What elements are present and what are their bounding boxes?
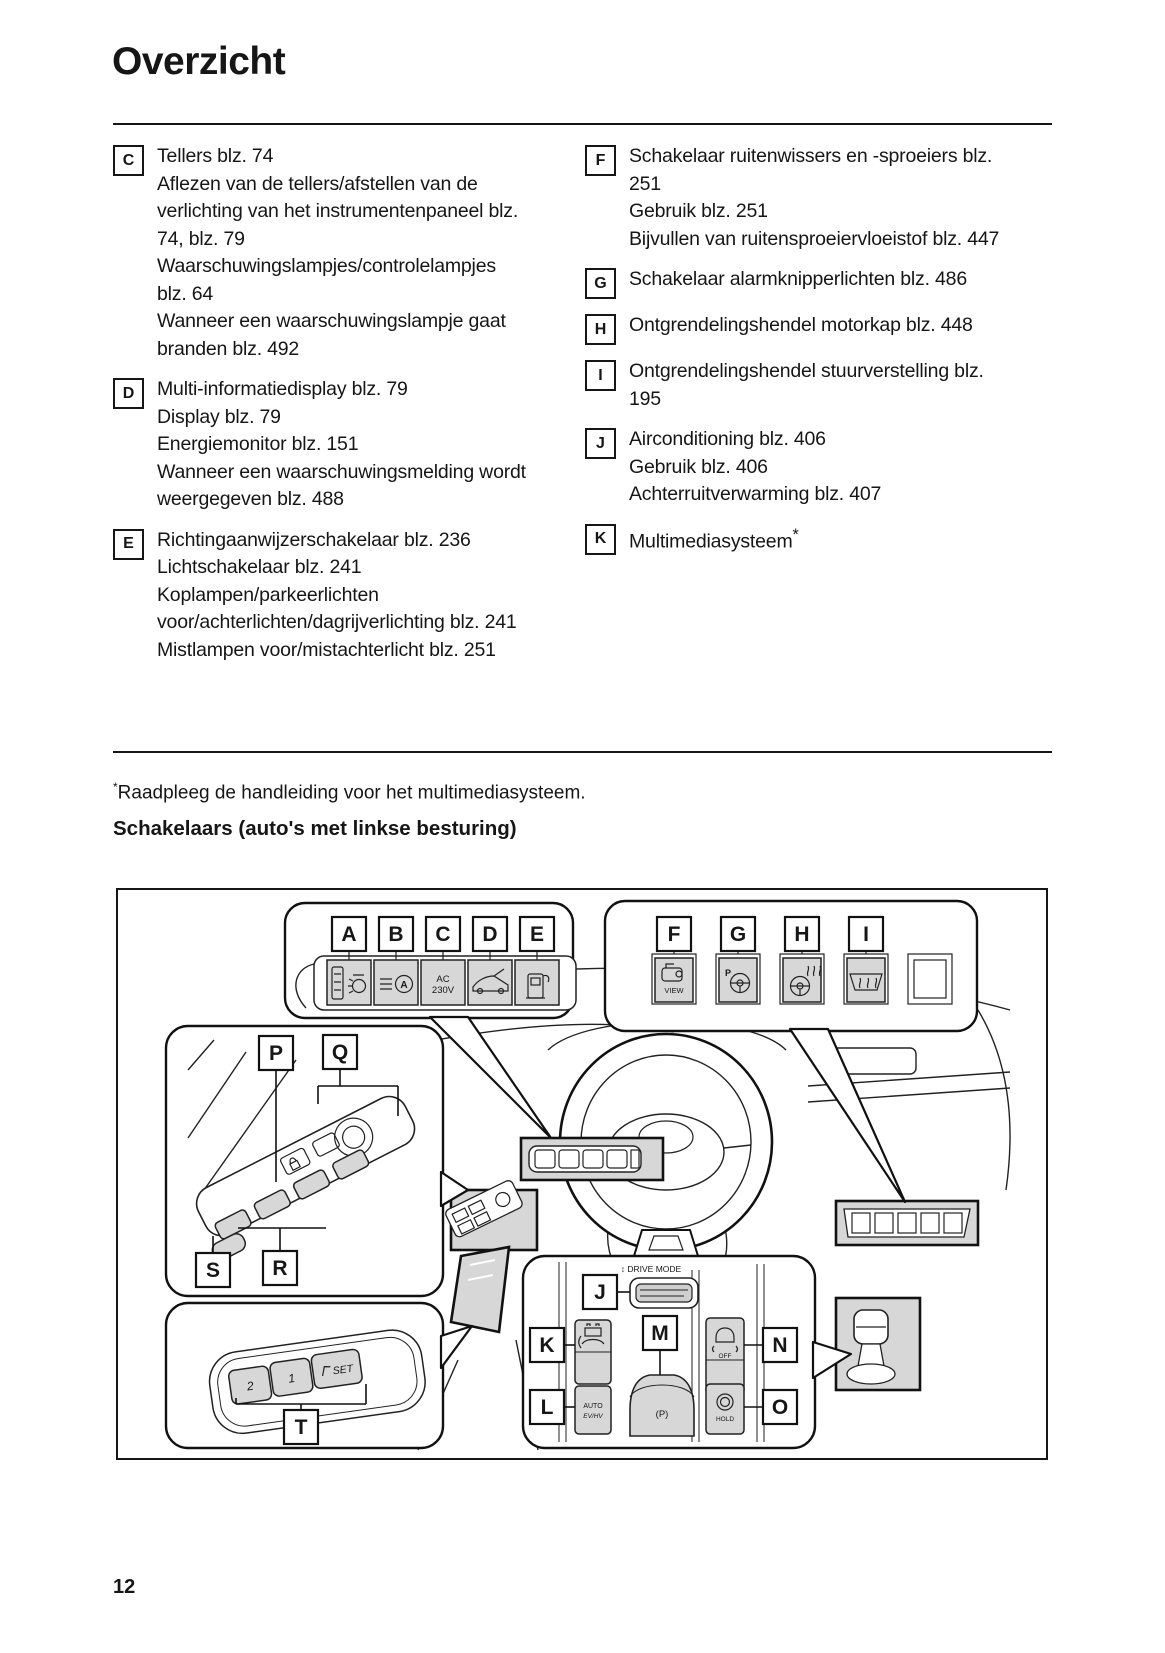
callout-group-door-panel: P Q S R (166, 1026, 468, 1296)
gear-shifter-highlight (836, 1298, 920, 1390)
callout-letter-e: E (530, 923, 544, 946)
dash-switch-strip-highlight (836, 1201, 978, 1245)
entry-lines: Multi-informatiedisplay blz. 79 Display … (157, 376, 529, 514)
page-title: Overzicht (112, 40, 285, 84)
entry-line: Richtingaanwijzerschakelaar blz. 236 (157, 527, 529, 555)
callout-letter-o: O (772, 1396, 788, 1419)
overview-entry-d: D Multi-informatiedisplay blz. 79 Displa… (113, 376, 585, 514)
divider-bottom (113, 751, 1052, 753)
entry-line: Wanneer een waarschuwingslampje gaat bra… (157, 308, 529, 363)
callout-letter-h: H (794, 923, 809, 946)
auto-evhv-switch: AUTO EV/HV (575, 1386, 611, 1434)
item-letter-box: C (113, 145, 144, 176)
overview-entry-j: J Airconditioning blz. 406 Gebruik blz. … (585, 426, 1052, 509)
footnote-text: Raadpleeg de handleiding voor het multim… (118, 782, 586, 803)
svg-text:AC: AC (436, 974, 449, 985)
entry-line: Tellers blz. 74 (157, 143, 529, 171)
callout-letter-d: D (482, 923, 497, 946)
item-letter: G (594, 275, 606, 293)
entry-line: Schakelaar ruitenwissers en -sproeiers b… (629, 143, 1007, 198)
entry-line: Mistlampen voor/mistachterlicht blz. 251 (157, 637, 529, 665)
overview-entry-f: F Schakelaar ruitenwissers en -sproeiers… (585, 143, 1052, 253)
entry-line: Display blz. 79 (157, 404, 529, 432)
callout-letter-m: M (651, 1322, 669, 1345)
entry-lines: Ontgrendelingshendel stuurverstelling bl… (629, 358, 1007, 413)
item-letter-box: K (585, 524, 616, 555)
item-letter-box: E (113, 529, 144, 560)
item-letter: C (123, 152, 135, 170)
callout-letter-a: A (341, 923, 356, 946)
switches-diagram: A AC 230V A B C D E (116, 888, 1048, 1460)
callout-letter-b: B (388, 923, 403, 946)
overview-entry-c: C Tellers blz. 74 Aflezen van de tellers… (113, 143, 585, 363)
overview-entry-g: G Schakelaar alarmknipperlichten blz. 48… (585, 266, 1052, 299)
auto-label: AUTO (583, 1403, 603, 1410)
view-label: VIEW (664, 986, 684, 995)
item-letter: J (596, 435, 605, 453)
drive-mode-selector (630, 1278, 698, 1308)
callout-group-console: ↕ DRIVE MODE AUTO EV/HV (P) (523, 1256, 851, 1448)
svg-text:230V: 230V (432, 985, 455, 996)
entry-line: Schakelaar alarmknipperlichten blz. 486 (629, 266, 1007, 294)
overview-entry-k: K Multimediasysteem* (585, 522, 1052, 556)
entry-line: Bijvullen van ruitensproeiervloeistof bl… (629, 226, 1007, 254)
entry-lines: Schakelaar alarmknipperlichten blz. 486 (629, 266, 1007, 299)
entry-lines: Airconditioning blz. 406 Gebruik blz. 40… (629, 426, 1007, 509)
entry-lines: Tellers blz. 74 Aflezen van de tellers/a… (157, 143, 529, 363)
callout-letter-s: S (206, 1259, 220, 1282)
item-letter-box: H (585, 314, 616, 345)
entry-line: Koplampen/parkeerlichten voor/achterlich… (157, 582, 529, 637)
battery-hold-switch (575, 1320, 611, 1384)
callout-letter-c: C (435, 923, 450, 946)
item-letter-box: G (585, 268, 616, 299)
auto-high-beam-letter: A (400, 980, 407, 991)
entry-line: Multimediasysteem* (629, 522, 1007, 556)
callout-letter-t: T (295, 1416, 308, 1439)
entry-line: Achterruitverwarming blz. 407 (629, 481, 1007, 509)
item-letter-box: F (585, 145, 616, 176)
callout-group-seat-memory: 2 1 SET T (166, 1303, 472, 1448)
parking-brake-label: (P) (656, 1409, 669, 1420)
entry-line: Waarschuwingslampjes/controlelampjes blz… (157, 253, 529, 308)
overview-list: C Tellers blz. 74 Aflezen van de tellers… (113, 143, 1052, 677)
callout-letter-p: P (269, 1042, 283, 1065)
overview-column-right: F Schakelaar ruitenwissers en -sproeiers… (585, 143, 1052, 677)
entry-line: Aflezen van de tellers/afstellen van de … (157, 171, 529, 254)
switches-diagram-svg: A AC 230V A B C D E (118, 890, 1046, 1458)
entry-lines: Ontgrendelingshendel motorkap blz. 448 (629, 312, 1007, 345)
item-letter: K (595, 530, 607, 548)
parking-brake-switch: (P) (630, 1375, 694, 1436)
pointer-wedge-abcde (430, 1017, 551, 1138)
entry-line: Energiemonitor blz. 151 (157, 431, 529, 459)
seat-side-panel-highlight (451, 1247, 509, 1332)
item-letter: H (595, 321, 607, 339)
entry-line: Wanneer een waarschuwingsmelding wordt w… (157, 459, 529, 514)
callout-letter-j: J (594, 1281, 606, 1304)
section-subheading: Schakelaars (auto's met linkse besturing… (113, 817, 517, 841)
vsc-off-switch: OFF (706, 1318, 744, 1394)
callout-letter-n: N (772, 1334, 787, 1357)
divider-top (113, 123, 1052, 125)
item-letter: E (123, 535, 134, 553)
footnote-marker: * (792, 526, 798, 544)
entry-line: Ontgrendelingshendel motorkap blz. 448 (629, 312, 1007, 340)
item-letter-box: I (585, 360, 616, 391)
callout-letter-r: R (272, 1257, 287, 1280)
page-number: 12 (113, 1576, 135, 1599)
pointer-wedge-fghi (790, 1029, 905, 1202)
entry-line: Multi-informatiedisplay blz. 79 (157, 376, 529, 404)
item-letter-box: D (113, 378, 144, 409)
entry-line: Lichtschakelaar blz. 241 (157, 554, 529, 582)
overview-column-left: C Tellers blz. 74 Aflezen van de tellers… (113, 143, 585, 677)
footnote: *Raadpleeg de handleiding voor het multi… (113, 780, 586, 804)
entry-lines: Richtingaanwijzerschakelaar blz. 236 Lic… (157, 527, 529, 665)
callout-letter-l: L (541, 1396, 554, 1419)
evhv-label: EV/HV (583, 1413, 603, 1420)
callout-letter-g: G (730, 923, 746, 946)
callout-letter-boxes-abcde: A B C D E (332, 917, 554, 951)
item-letter-box: J (585, 428, 616, 459)
callout-letter-f: F (668, 923, 681, 946)
column-switch-strip-highlight (521, 1138, 663, 1180)
item-letter: D (123, 385, 135, 403)
entry-lines: Schakelaar ruitenwissers en -sproeiers b… (629, 143, 1007, 253)
entry-lines: Multimediasysteem* (629, 522, 1007, 556)
entry-line: Gebruik blz. 251 (629, 198, 1007, 226)
overview-entry-i: I Ontgrendelingshendel stuurverstelling … (585, 358, 1052, 413)
entry-line: Airconditioning blz. 406 (629, 426, 1007, 454)
item-letter: I (598, 367, 602, 385)
vsc-off-label: OFF (719, 1353, 732, 1360)
overview-entry-e: E Richtingaanwijzerschakelaar blz. 236 L… (113, 527, 585, 665)
entry-line: Gebruik blz. 406 (629, 454, 1007, 482)
callout-letter-q: Q (332, 1041, 348, 1064)
callout-letter-k: K (539, 1334, 554, 1357)
entry-line-text: Multimediasysteem (629, 530, 792, 552)
callout-letter-i: I (863, 923, 869, 946)
drive-mode-label: ↕ DRIVE MODE (621, 1264, 682, 1274)
brake-hold-switch: HOLD (706, 1384, 744, 1434)
entry-line: Ontgrendelingshendel stuurverstelling bl… (629, 358, 1007, 413)
overview-entry-h: H Ontgrendelingshendel motorkap blz. 448 (585, 312, 1052, 345)
item-letter: F (596, 152, 606, 170)
svg-text:P: P (725, 968, 731, 978)
brake-hold-label: HOLD (716, 1416, 734, 1423)
